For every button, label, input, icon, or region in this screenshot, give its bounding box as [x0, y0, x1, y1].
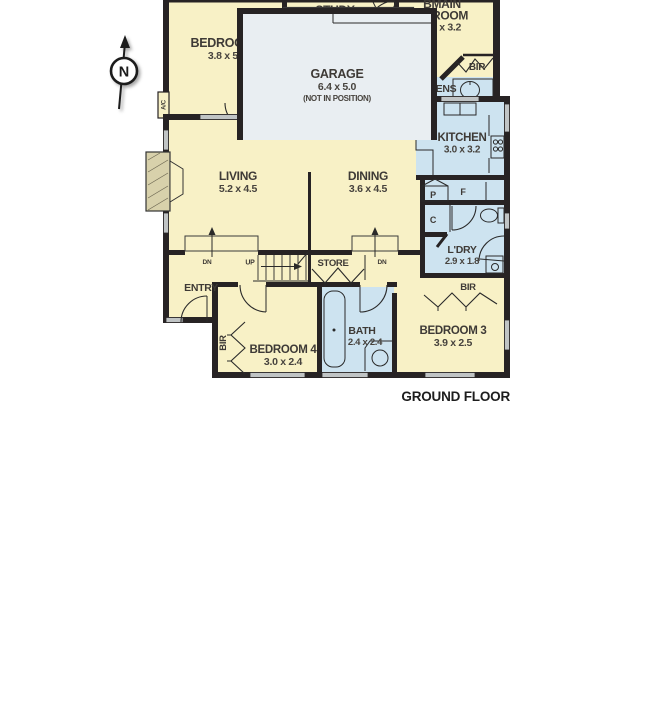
garage-label: GARAGE — [310, 67, 363, 81]
bedroom3-dims: 3.9 x 2.5 — [434, 337, 473, 349]
store-label: STORE — [317, 258, 348, 269]
ground-floor-title: GROUND FLOOR — [401, 389, 510, 404]
bedroom4-label: BEDROOM 4 — [250, 344, 318, 356]
bedroom3-label: BEDROOM 3 — [420, 325, 487, 337]
living-label: LIVING — [219, 169, 257, 183]
dining-dims: 3.6 x 4.5 — [349, 183, 388, 195]
garage-plan: GARAGE 6.4 x 5.0 (NOT IN POSITION) N — [0, 0, 667, 140]
garage-dims: 6.4 x 5.0 — [318, 81, 357, 93]
bir-bed3-label: BIR — [460, 282, 476, 293]
bath-label: BATH — [348, 325, 375, 337]
dining-label: DINING — [348, 169, 388, 183]
north-compass-icon: N — [111, 35, 137, 109]
bir-bed4-label: BIR — [218, 335, 229, 351]
kitchen-dims: 3.0 x 3.2 — [444, 145, 481, 156]
laundry-label: L'DRY — [447, 244, 476, 256]
cupboard-label: C — [430, 215, 437, 225]
fridge-label: F — [460, 187, 466, 197]
step-left-dn-label: DN — [203, 259, 212, 266]
living-dims: 5.2 x 4.5 — [219, 183, 258, 195]
step-right-dn-label: DN — [378, 259, 387, 266]
floorplan-page: A/C DN — [0, 0, 667, 720]
compass-north-label: N — [119, 65, 129, 81]
bedroom4-dims: 3.0 x 2.4 — [264, 356, 303, 368]
garage-note: (NOT IN POSITION) — [303, 94, 371, 103]
pantry-label: P — [430, 190, 436, 200]
entry-label: ENTRY — [184, 282, 218, 294]
laundry-dims: 2.9 x 1.8 — [445, 256, 479, 267]
room-garage: GARAGE 6.4 x 5.0 (NOT IN POSITION) — [240, 11, 434, 140]
bath-dims: 2.4 x 2.4 — [348, 337, 383, 348]
stairs-up-label: UP — [245, 260, 255, 267]
